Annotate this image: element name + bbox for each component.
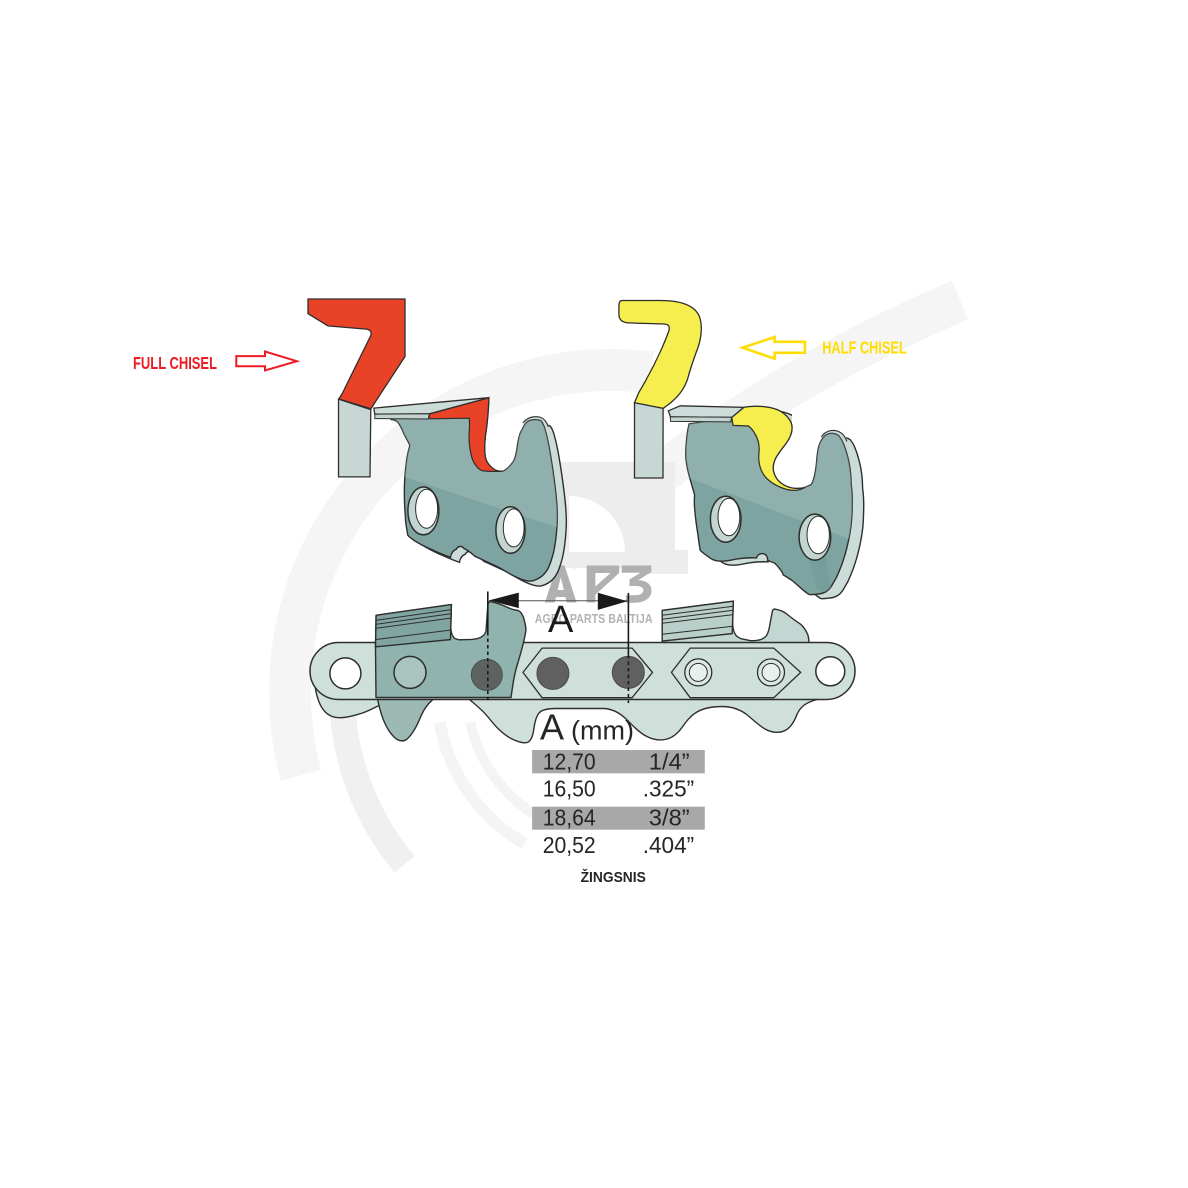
svg-text:.325”: .325” — [643, 776, 695, 802]
svg-text:A: A — [548, 599, 574, 641]
svg-text:20,52: 20,52 — [543, 832, 596, 858]
svg-text:3/8”: 3/8” — [649, 804, 690, 830]
svg-text:1/4”: 1/4” — [649, 749, 690, 775]
svg-text:HALF CHISEL: HALF CHISEL — [822, 338, 907, 358]
svg-text:.404”: .404” — [643, 832, 695, 858]
svg-text:18,64: 18,64 — [543, 804, 596, 830]
svg-text:12,70: 12,70 — [543, 749, 596, 775]
svg-text:ŽINGSNIS: ŽINGSNIS — [581, 868, 646, 886]
svg-text:16,50: 16,50 — [543, 776, 596, 802]
svg-text:FULL CHISEL: FULL CHISEL — [133, 353, 217, 373]
